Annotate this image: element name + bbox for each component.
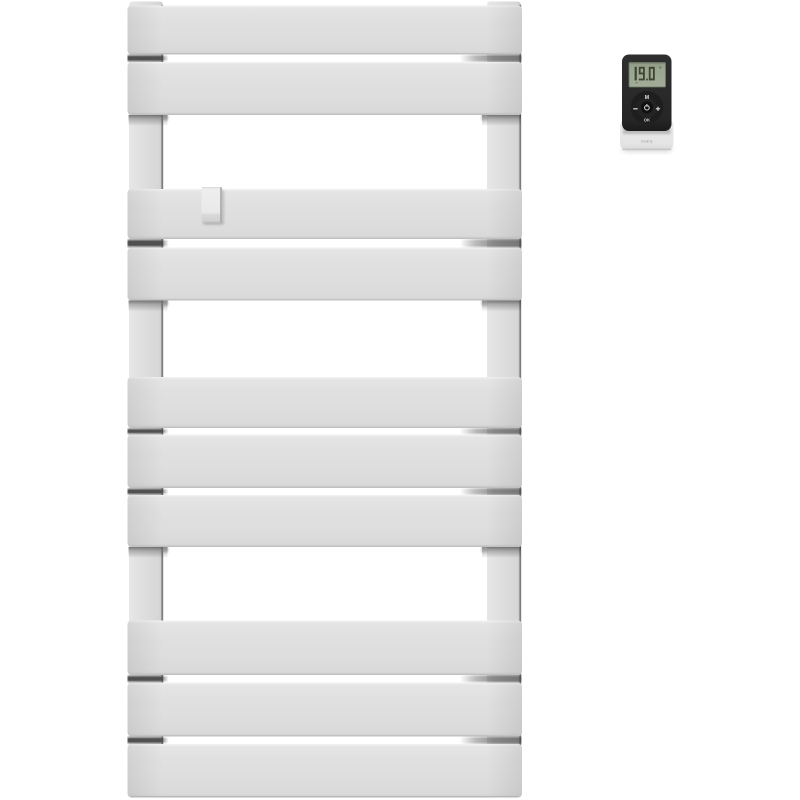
svg-text:heatrly: heatrly [641,140,652,144]
svg-text:M: M [645,95,649,101]
svg-text:OK: OK [644,118,650,123]
